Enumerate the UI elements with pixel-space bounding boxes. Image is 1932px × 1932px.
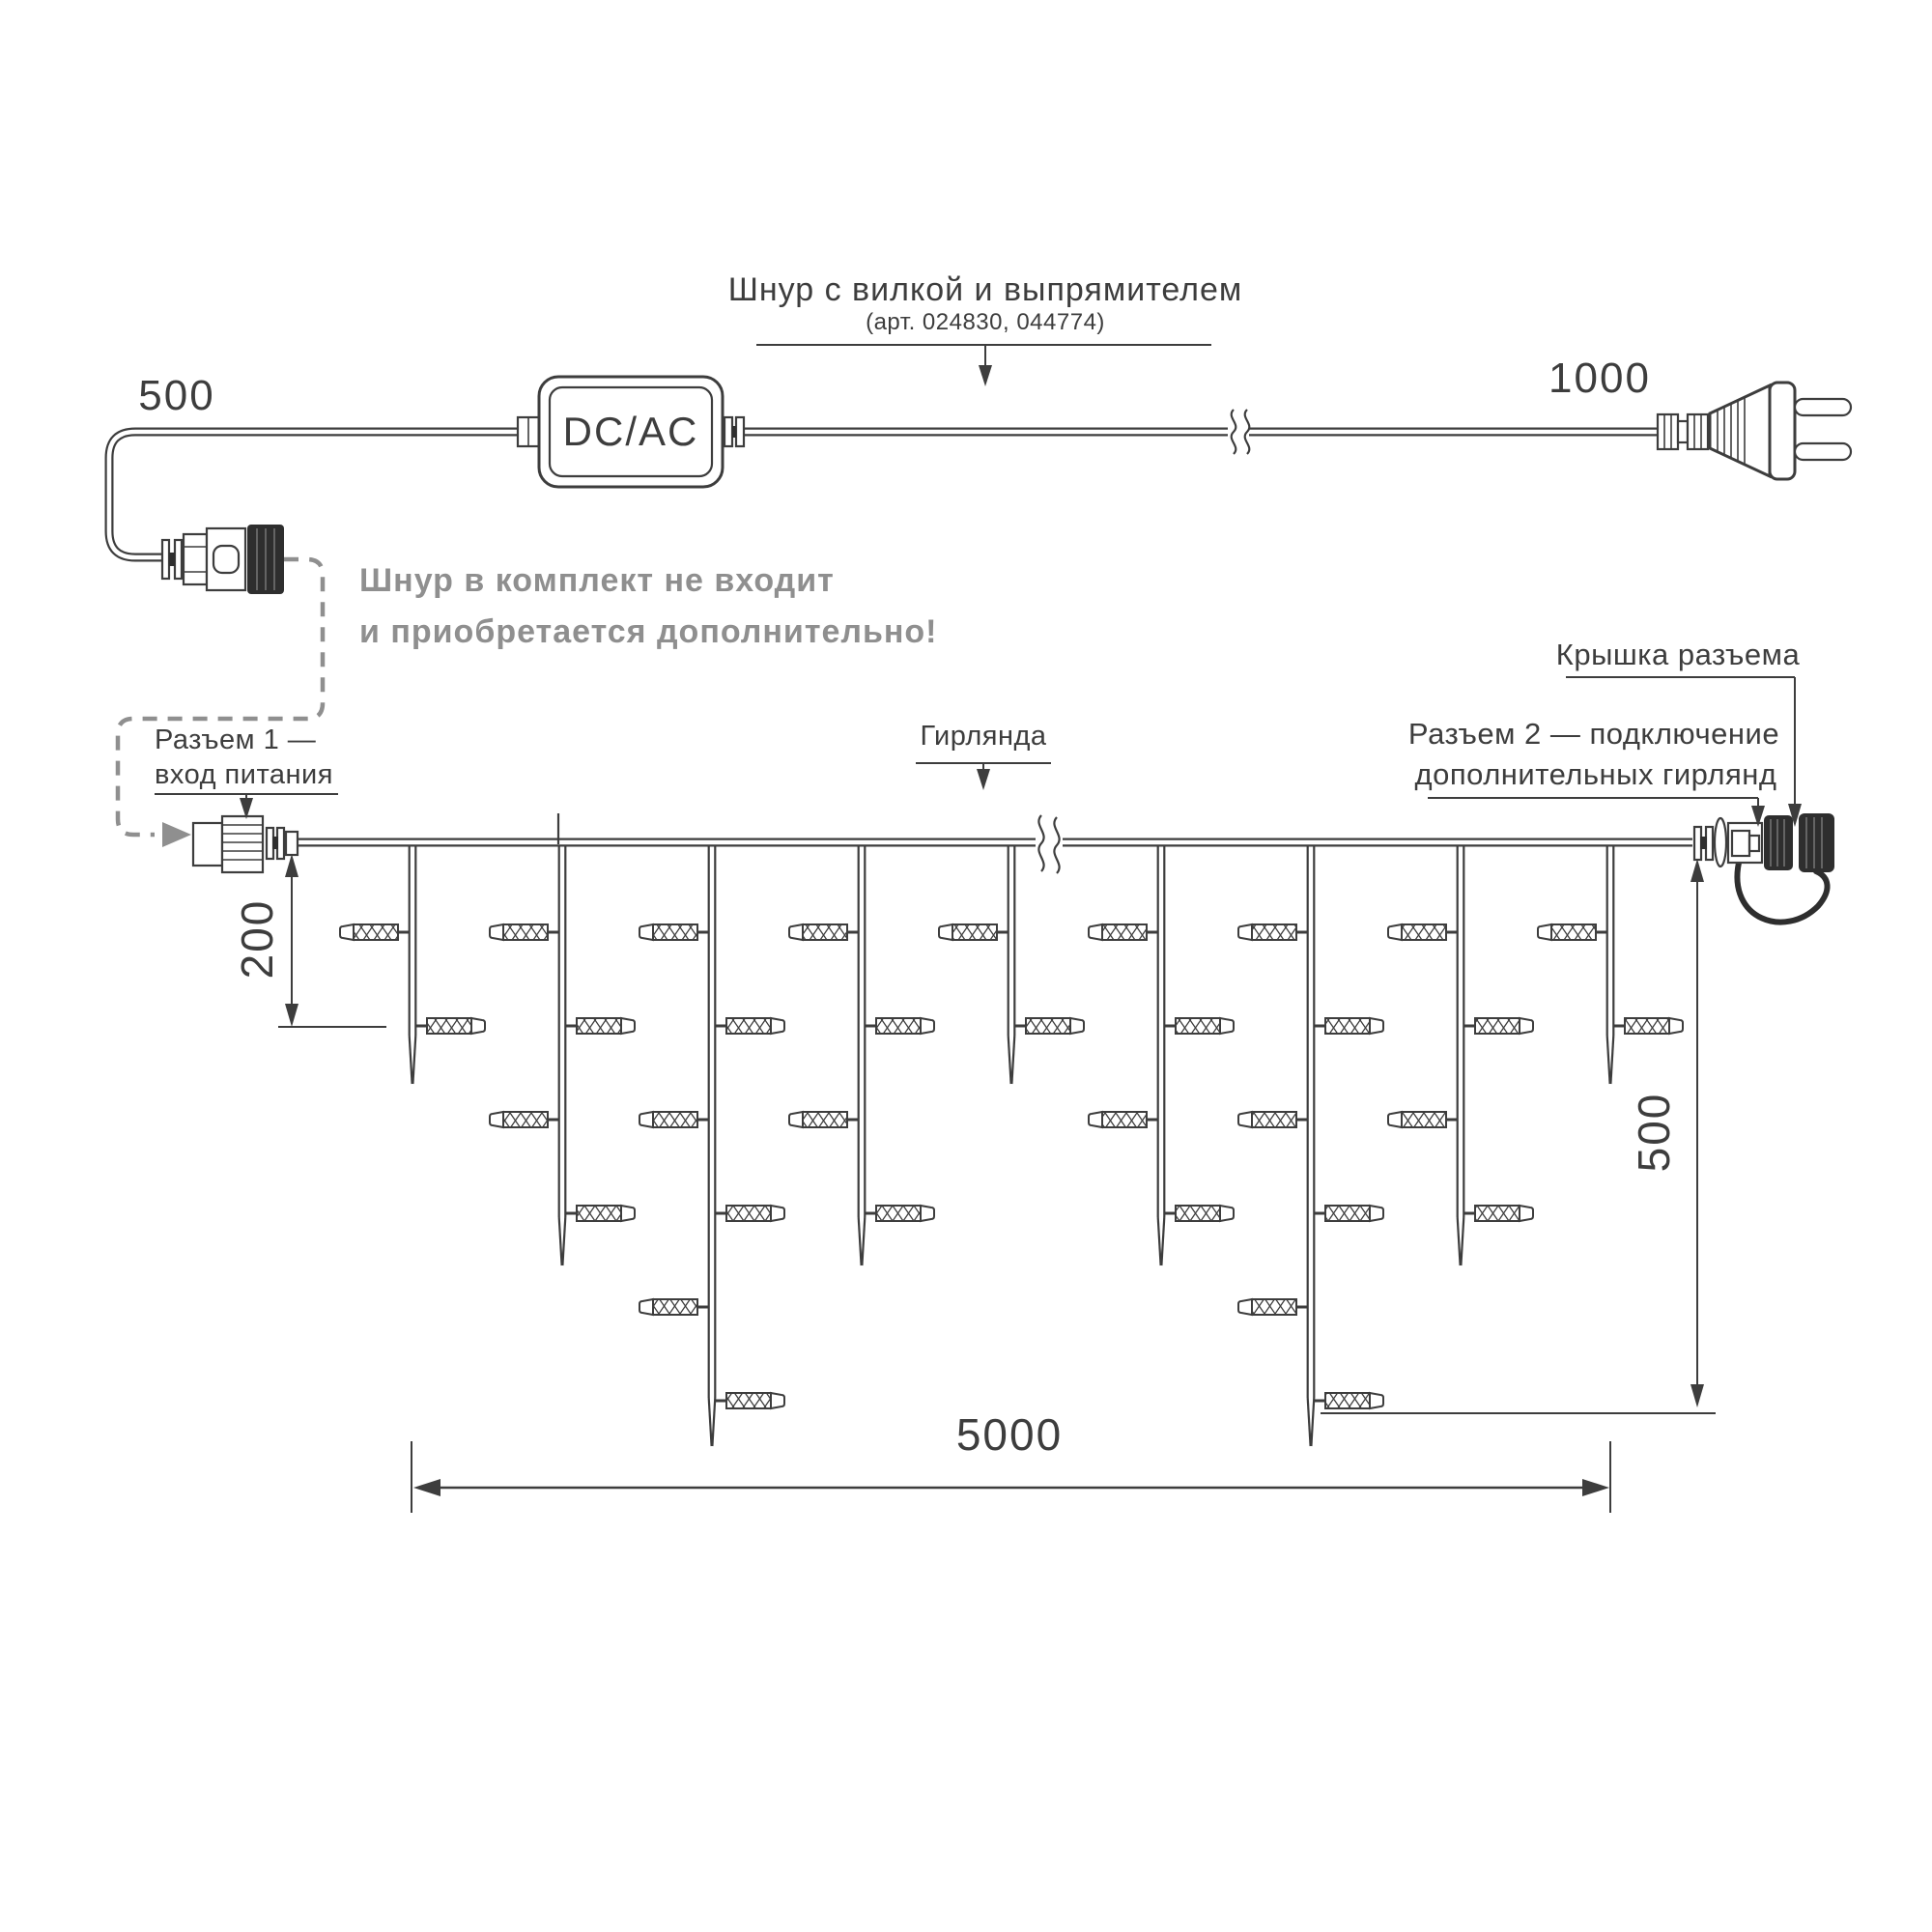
cord-title: Шнур с вилкой и выпрямителем: [728, 273, 1243, 306]
cord-subtitle: (арт. 024830, 044774): [866, 311, 1105, 334]
connector2-label-line2: дополнительных гирлянд: [1415, 759, 1777, 789]
connector1-icon: [193, 816, 298, 872]
garland-break-icon: [1036, 815, 1063, 873]
connector2-label-line1: Разъем 2 — подключение: [1408, 719, 1779, 749]
connector1-label-line1: Разъем 1 —: [155, 726, 316, 754]
dim-label-500-drop: 500: [1632, 1093, 1676, 1173]
dashed-connection-path: [118, 559, 323, 847]
cord-break-icon: [1228, 410, 1249, 454]
diagram-canvas: Шнур с вилкой и выпрямителем (арт. 02483…: [0, 0, 1932, 1932]
cord-label-leader: [756, 345, 1211, 386]
garland-label: Гирлянда: [920, 723, 1046, 751]
garland-drops: [340, 846, 1683, 1446]
note-line2: и приобретается дополнительно!: [359, 615, 938, 648]
dim-label-500-cord: 500: [138, 375, 214, 417]
cap-label-leader: [1566, 677, 1802, 827]
cap-label: Крышка разъема: [1556, 639, 1800, 669]
connector1-label-leader: [155, 794, 338, 819]
garland-label-leader: [916, 763, 1051, 790]
dim-label-1000-cord: 1000: [1548, 357, 1651, 400]
dim-label-5000: 5000: [956, 1412, 1063, 1457]
note-line1: Шнур в комплект не входит: [359, 564, 835, 597]
converter-label: DC/AC: [563, 412, 699, 452]
connector2-icon: [1694, 813, 1834, 923]
cord-connector-icon: [162, 525, 284, 594]
connector1-label-line2: вход питания: [155, 761, 333, 789]
connector2-label-leader: [1428, 798, 1765, 827]
power-plug-icon: [1658, 383, 1851, 479]
dim-label-200: 200: [235, 899, 279, 980]
